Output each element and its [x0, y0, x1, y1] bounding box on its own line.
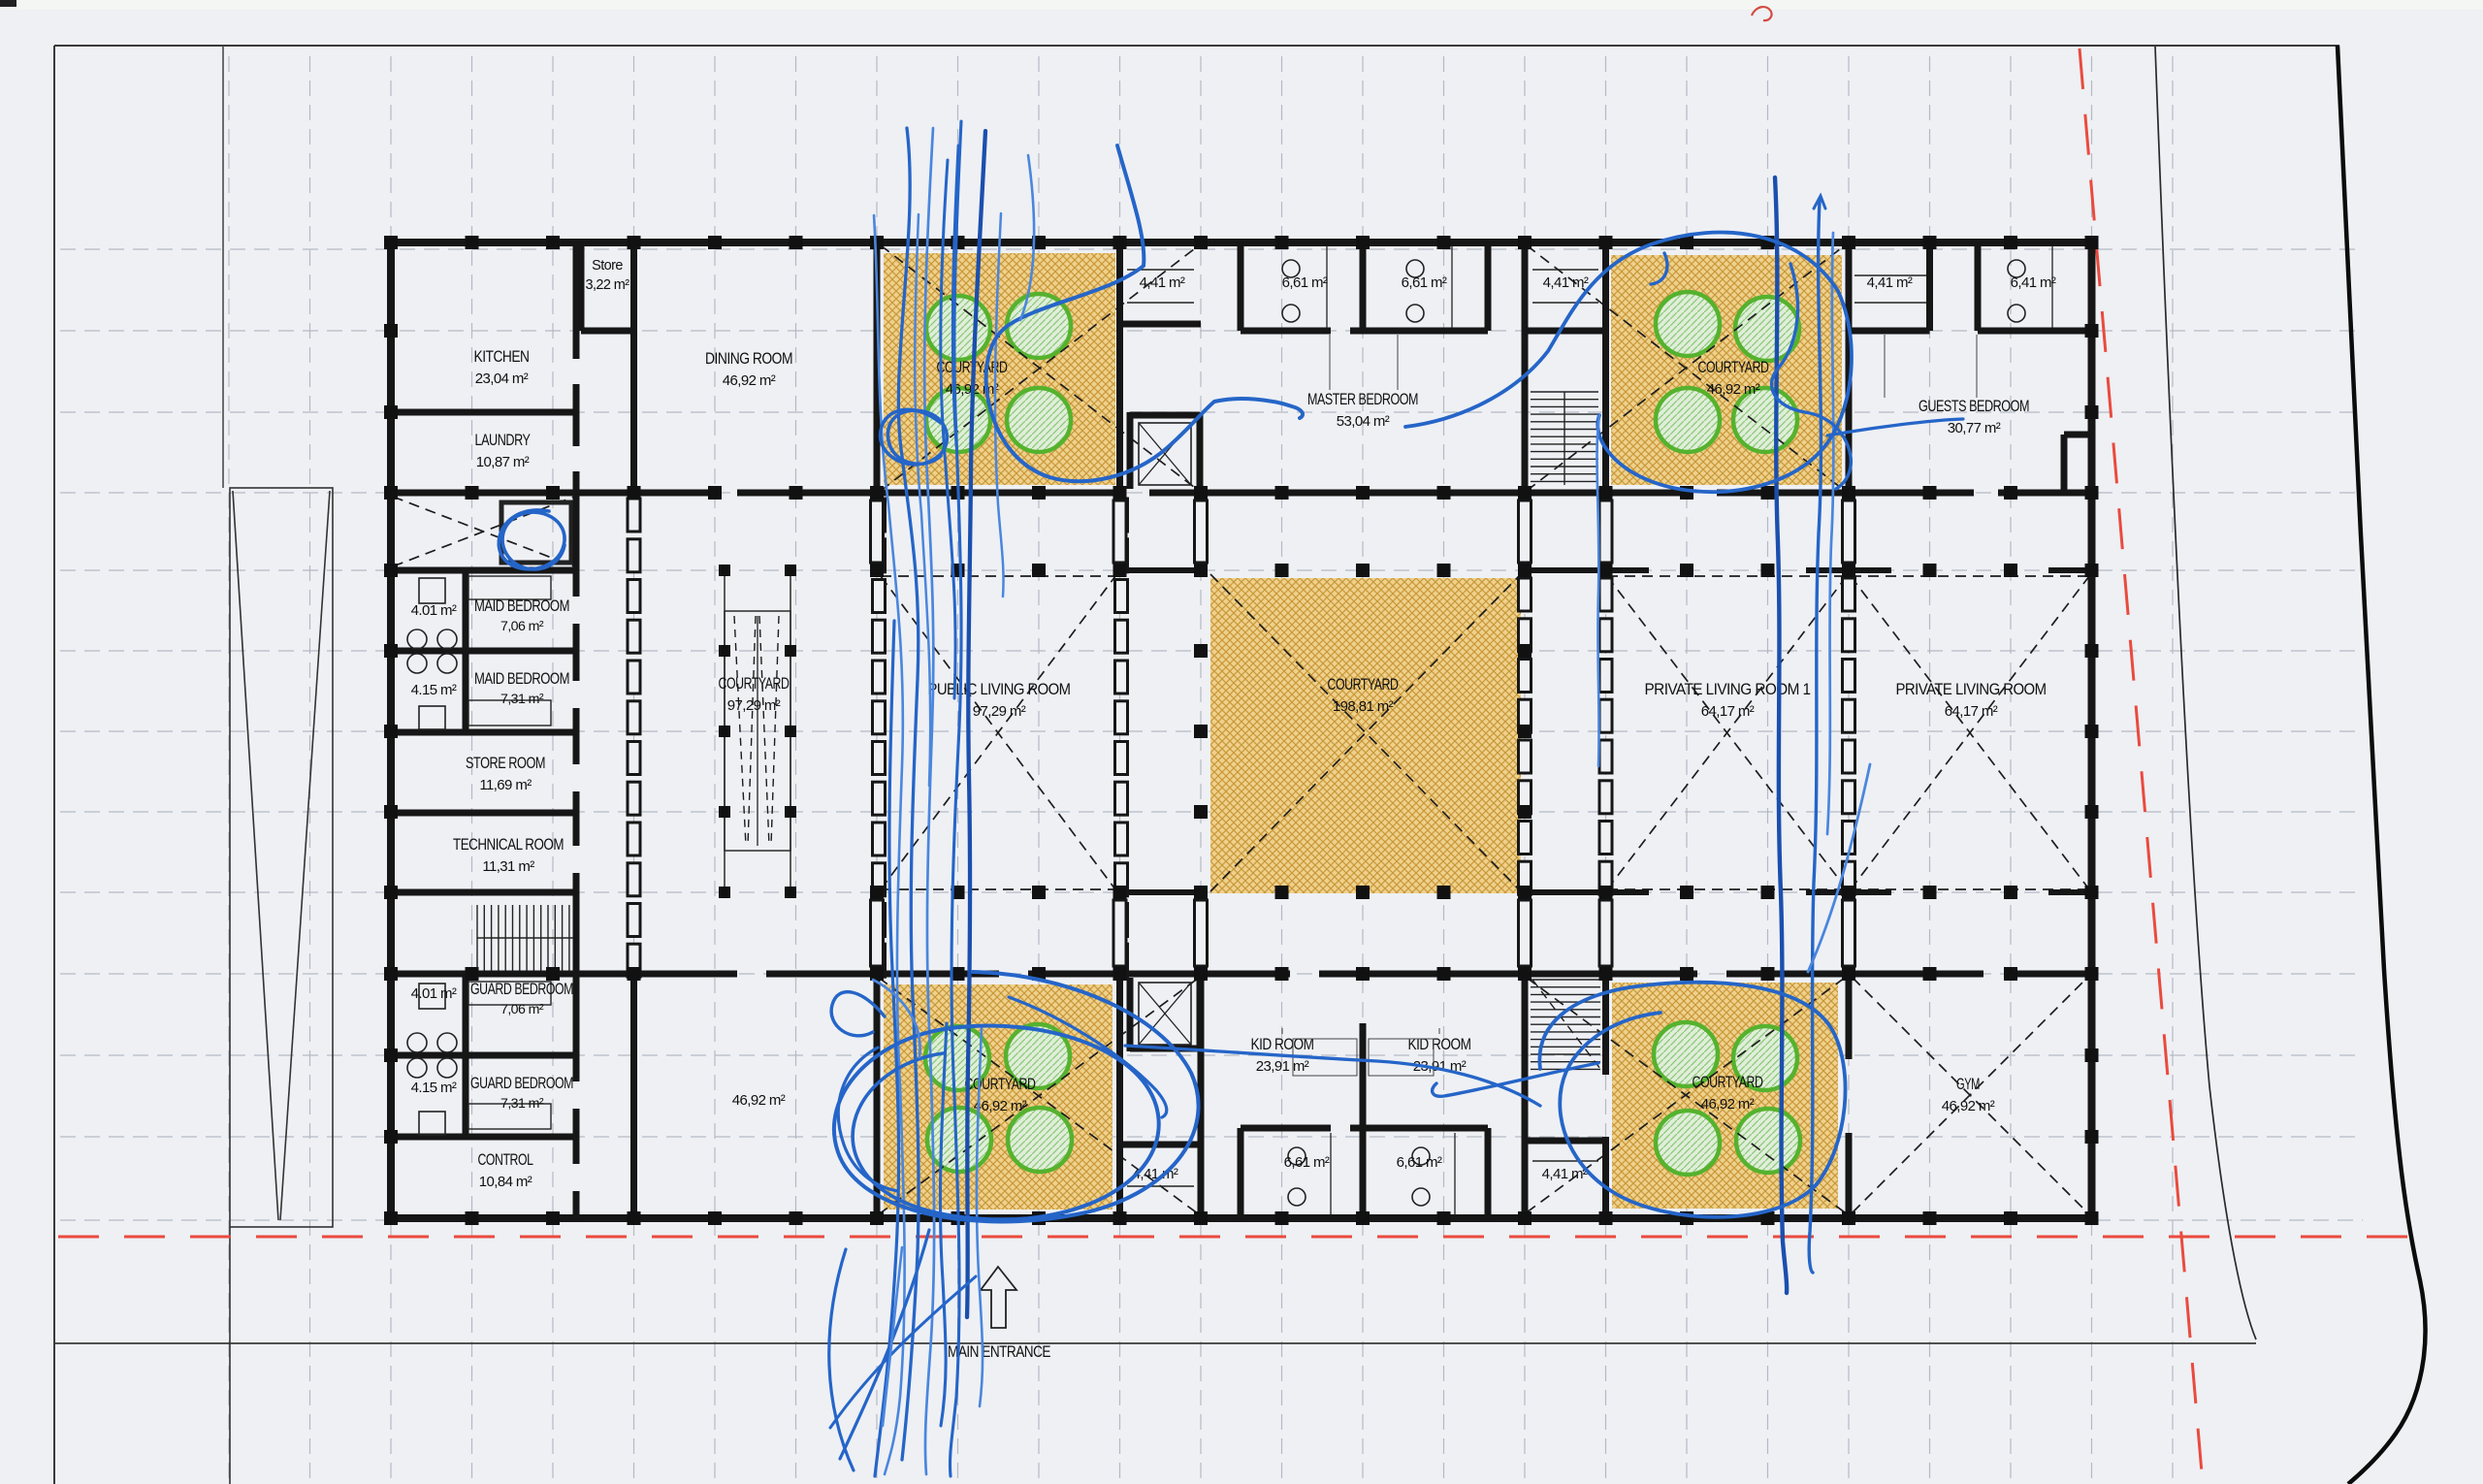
- svg-text:6,41 m²: 6,41 m²: [2011, 274, 2056, 291]
- svg-text:23,04 m²: 23,04 m²: [475, 371, 529, 387]
- svg-text:MAID BEDROOM: MAID BEDROOM: [474, 670, 569, 688]
- svg-text:6,61 m²: 6,61 m²: [1284, 1154, 1330, 1171]
- svg-text:PRIVATE LIVING ROOM: PRIVATE LIVING ROOM: [1896, 681, 2047, 698]
- svg-text:46,92 m²: 46,92 m²: [974, 1098, 1027, 1114]
- svg-text:6,61 m²: 6,61 m²: [1282, 274, 1328, 291]
- svg-text:46,92 m²: 46,92 m²: [732, 1092, 786, 1109]
- svg-text:CONTROL: CONTROL: [478, 1151, 533, 1169]
- svg-text:46,92 m²: 46,92 m²: [1701, 1096, 1755, 1113]
- svg-text:6,61 m²: 6,61 m²: [1402, 274, 1447, 291]
- svg-text:46,92 m²: 46,92 m²: [1942, 1098, 1995, 1114]
- svg-text:7,31 m²: 7,31 m²: [500, 692, 544, 707]
- svg-text:4.15 m²: 4.15 m²: [411, 1080, 457, 1096]
- svg-text:64,17 m²: 64,17 m²: [1701, 703, 1755, 720]
- svg-text:COURTYARD: COURTYARD: [965, 1076, 1037, 1093]
- svg-text:97,29 m²: 97,29 m²: [973, 703, 1026, 720]
- svg-text:97,29 m²: 97,29 m²: [727, 697, 781, 714]
- svg-text:MASTER BEDROOM: MASTER BEDROOM: [1307, 391, 1418, 408]
- svg-text:6,61 m²: 6,61 m²: [1397, 1154, 1442, 1171]
- svg-text:198,81 m²: 198,81 m²: [1333, 698, 1394, 715]
- svg-text:11,31 m²: 11,31 m²: [482, 858, 534, 875]
- svg-text:TECHNICAL ROOM: TECHNICAL ROOM: [453, 836, 564, 854]
- svg-text:GUESTS BEDROOM: GUESTS BEDROOM: [1919, 398, 2029, 415]
- svg-text:4,41 m²: 4,41 m²: [1543, 274, 1589, 291]
- svg-text:46,92 m²: 46,92 m²: [723, 372, 776, 389]
- svg-text:COURTYARD: COURTYARD: [1693, 1074, 1764, 1091]
- svg-text:4,41 m²: 4,41 m²: [1140, 274, 1185, 291]
- svg-text:GUARD BEDROOM: GUARD BEDROOM: [470, 981, 573, 998]
- svg-text:7,06 m²: 7,06 m²: [500, 619, 544, 634]
- svg-text:7,31 m²: 7,31 m²: [500, 1096, 544, 1112]
- svg-text:10,87 m²: 10,87 m²: [476, 454, 530, 470]
- svg-text:10,84 m²: 10,84 m²: [479, 1174, 532, 1190]
- svg-text:11,69 m²: 11,69 m²: [479, 777, 532, 793]
- svg-text:46,92 m²: 46,92 m²: [1707, 381, 1760, 398]
- svg-text:4,41 m²: 4,41 m²: [1542, 1166, 1588, 1182]
- svg-text:KITCHEN: KITCHEN: [474, 348, 530, 366]
- svg-text:3,22 m²: 3,22 m²: [586, 277, 630, 293]
- svg-text:LAUNDRY: LAUNDRY: [475, 432, 531, 449]
- svg-text:GUARD BEDROOM: GUARD BEDROOM: [470, 1075, 573, 1092]
- svg-text:64,17 m²: 64,17 m²: [1945, 703, 1998, 720]
- svg-text:MAID BEDROOM: MAID BEDROOM: [474, 597, 569, 615]
- svg-text:GYM: GYM: [1956, 1076, 1980, 1093]
- svg-text:4.01 m²: 4.01 m²: [411, 602, 457, 619]
- svg-text:23,91 m²: 23,91 m²: [1256, 1058, 1309, 1075]
- svg-text:PRIVATE LIVING ROOM 1: PRIVATE LIVING ROOM 1: [1645, 681, 1811, 698]
- svg-text:30,77 m²: 30,77 m²: [1948, 420, 2001, 436]
- svg-text:PUBLIC LIVING ROOM: PUBLIC LIVING ROOM: [928, 681, 1071, 698]
- svg-text:COURTYARD: COURTYARD: [719, 675, 790, 693]
- svg-text:4.01 m²: 4.01 m²: [411, 985, 457, 1002]
- svg-text:COURTYARD: COURTYARD: [1698, 359, 1770, 376]
- svg-text:53,04 m²: 53,04 m²: [1337, 413, 1390, 430]
- svg-text:MAIN ENTRANCE: MAIN ENTRANCE: [948, 1343, 1050, 1361]
- svg-text:STORE ROOM: STORE ROOM: [466, 755, 545, 772]
- svg-text:7,06 m²: 7,06 m²: [500, 1002, 544, 1017]
- svg-text:DINING ROOM: DINING ROOM: [705, 350, 792, 368]
- svg-text:4.15 m²: 4.15 m²: [411, 682, 457, 698]
- svg-text:4,41 m²: 4,41 m²: [1867, 274, 1913, 291]
- svg-text:COURTYARD: COURTYARD: [1328, 676, 1400, 694]
- svg-text:Store: Store: [592, 258, 623, 274]
